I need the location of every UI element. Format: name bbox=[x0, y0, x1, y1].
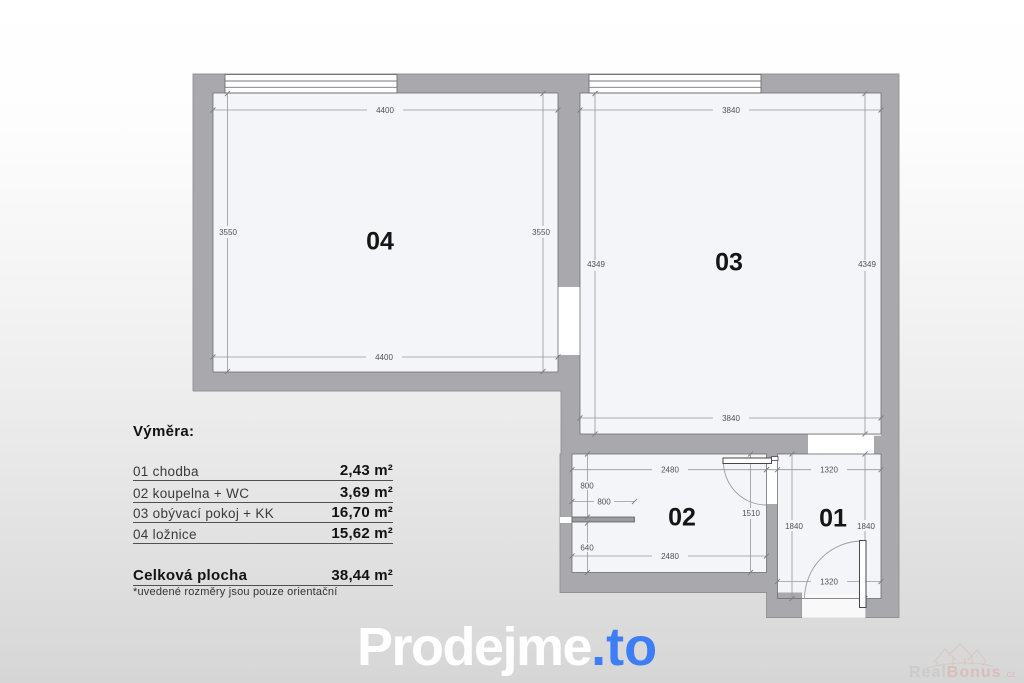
svg-text:4400: 4400 bbox=[375, 353, 393, 362]
svg-text:1840: 1840 bbox=[785, 522, 803, 531]
svg-text:1840: 1840 bbox=[857, 522, 875, 531]
svg-text:02: 02 bbox=[668, 504, 696, 532]
svg-text:640: 640 bbox=[580, 544, 594, 553]
svg-text:4349: 4349 bbox=[858, 260, 876, 269]
svg-text:03: 03 bbox=[715, 249, 743, 277]
svg-text:3550: 3550 bbox=[219, 228, 237, 237]
svg-text:800: 800 bbox=[580, 482, 594, 491]
svg-text:1510: 1510 bbox=[742, 509, 760, 518]
svg-text:4349: 4349 bbox=[587, 260, 605, 269]
svg-text:1320: 1320 bbox=[820, 466, 838, 475]
svg-text:.cz: .cz bbox=[1004, 669, 1016, 679]
svg-text:01: 01 bbox=[819, 505, 847, 533]
svg-text:04: 04 bbox=[366, 228, 394, 256]
svg-text:1320: 1320 bbox=[820, 578, 838, 587]
svg-text:3840: 3840 bbox=[722, 414, 740, 423]
svg-text:800: 800 bbox=[597, 498, 611, 507]
svg-text:3550: 3550 bbox=[532, 228, 550, 237]
svg-text:2480: 2480 bbox=[661, 552, 679, 561]
svg-text:4400: 4400 bbox=[376, 106, 394, 115]
svg-text:3840: 3840 bbox=[722, 106, 740, 115]
svg-text:2480: 2480 bbox=[661, 466, 679, 475]
svg-text:RealBonus: RealBonus bbox=[909, 664, 1002, 681]
